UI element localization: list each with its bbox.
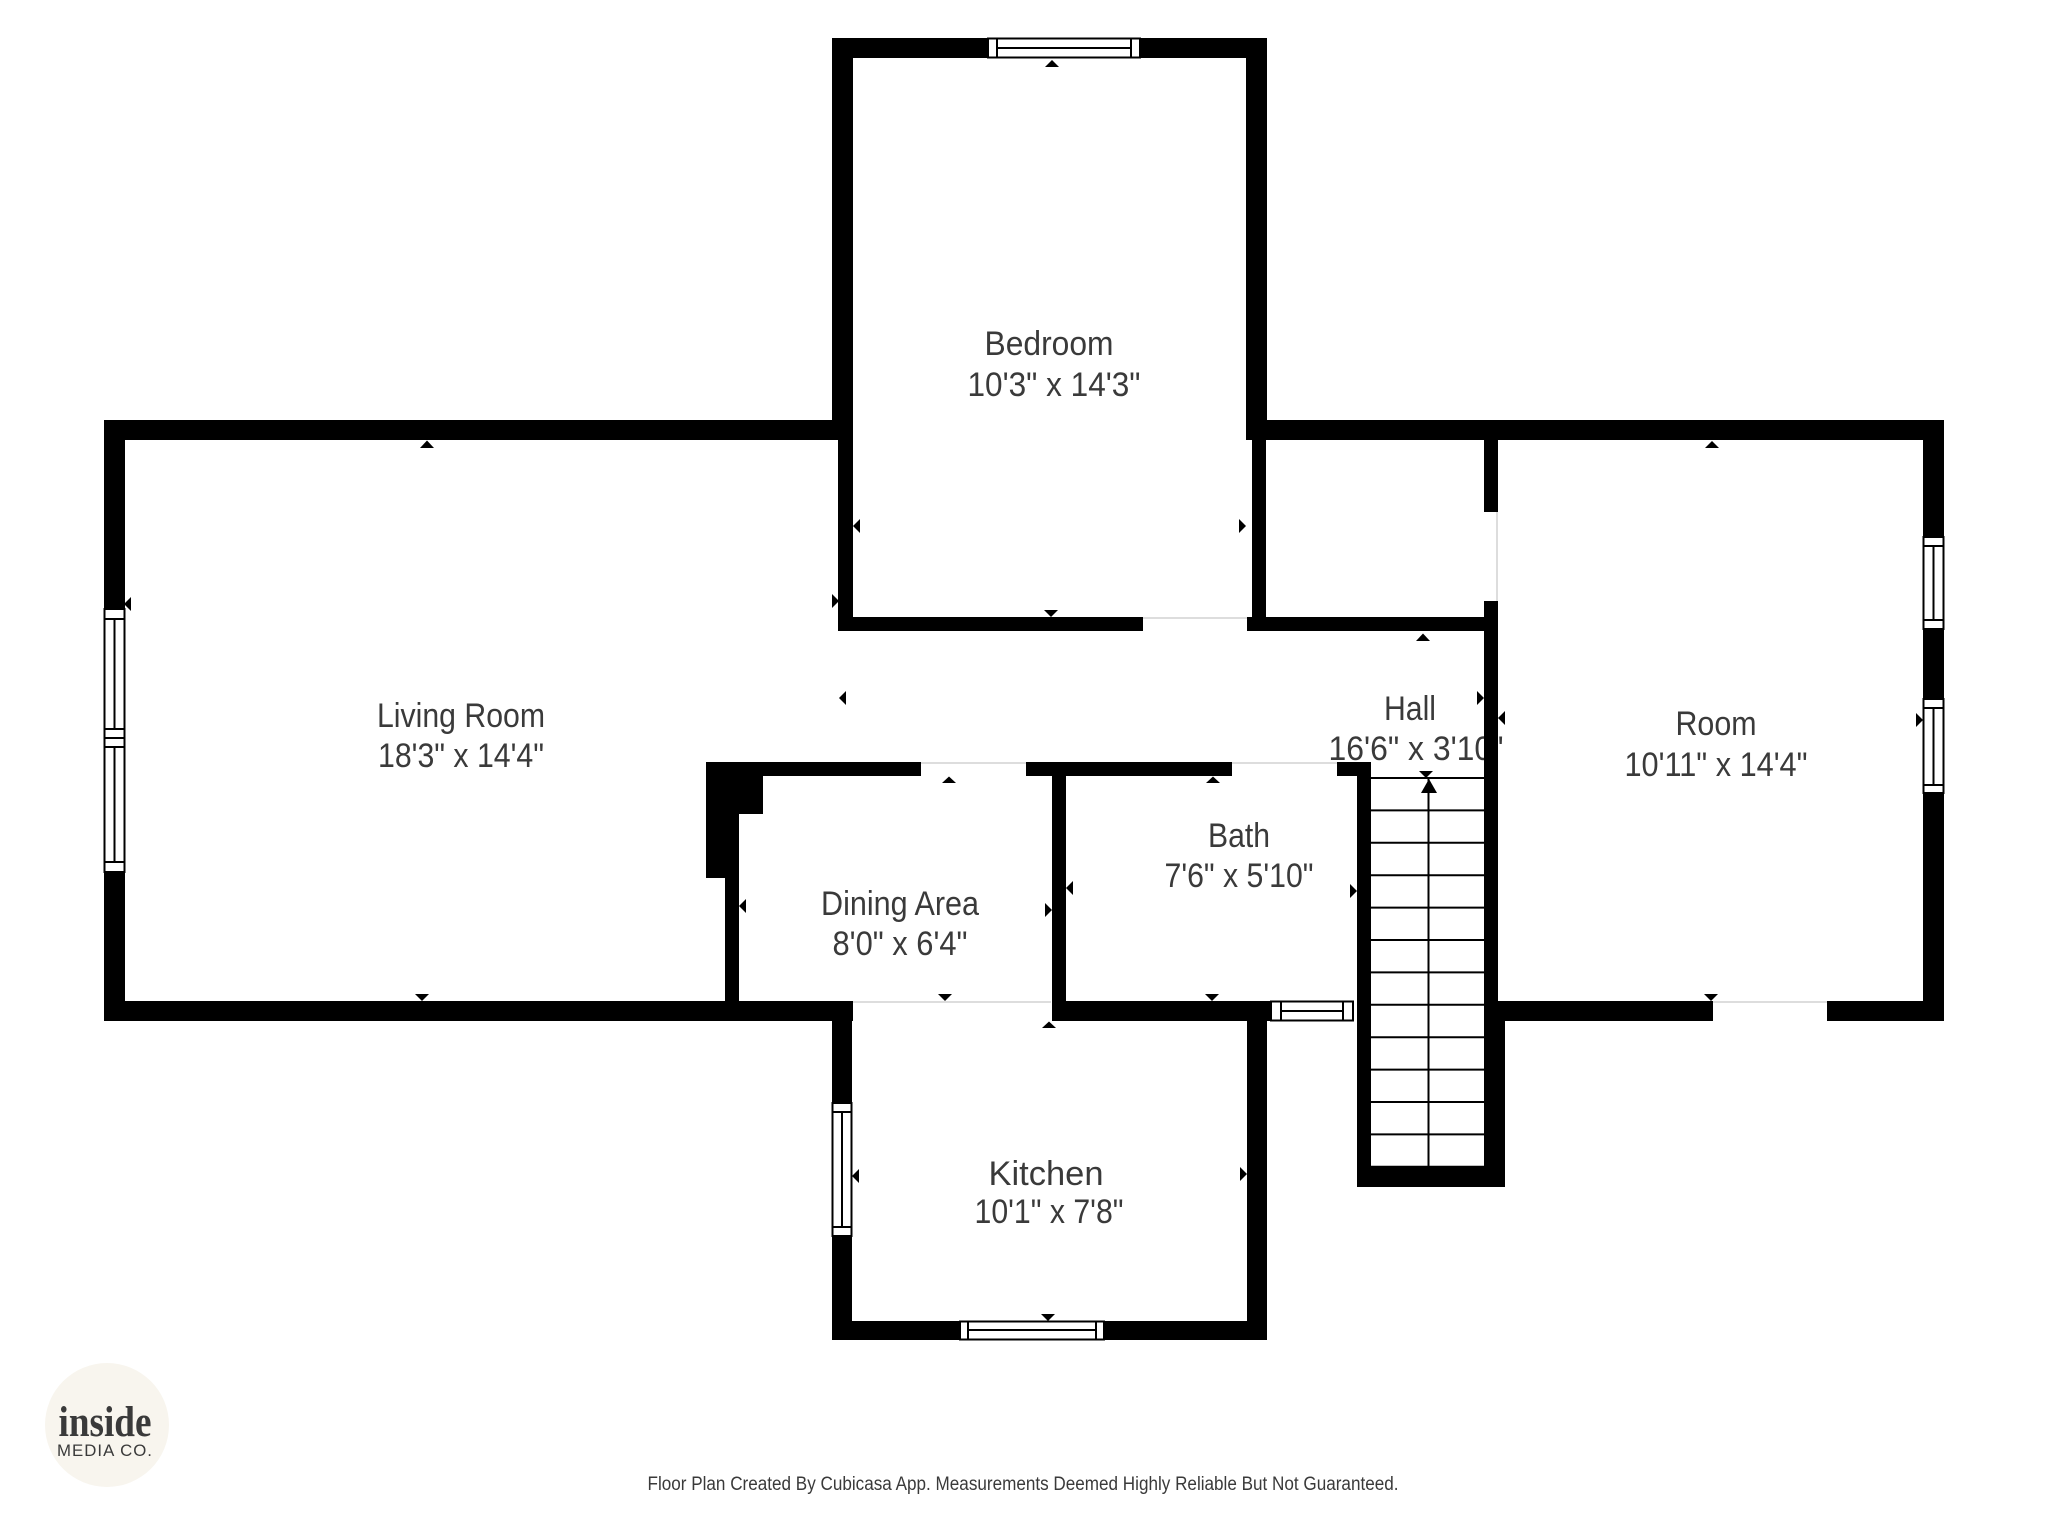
svg-text:Kitchen: Kitchen [989,1155,1104,1193]
svg-text:7'6" x 5'10": 7'6" x 5'10" [1165,857,1314,895]
svg-text:Dining Area: Dining Area [821,885,980,923]
svg-text:Bath: Bath [1208,817,1270,855]
svg-text:inside: inside [59,1399,152,1446]
svg-text:Living Room: Living Room [377,697,545,735]
svg-text:Room: Room [1676,705,1757,743]
svg-text:8'0" x 6'4": 8'0" x 6'4" [833,925,968,963]
svg-text:Floor Plan Created By Cubicasa: Floor Plan Created By Cubicasa App. Meas… [648,1474,1399,1495]
svg-text:10'11" x 14'4": 10'11" x 14'4" [1625,746,1808,784]
svg-text:18'3" x 14'4": 18'3" x 14'4" [378,737,544,775]
svg-text:Bedroom: Bedroom [985,325,1114,363]
svg-text:10'1" x 7'8": 10'1" x 7'8" [975,1193,1124,1231]
svg-text:MEDIA CO.: MEDIA CO. [57,1442,153,1460]
svg-text:Hall: Hall [1384,690,1436,728]
svg-text:10'3" x 14'3": 10'3" x 14'3" [968,366,1141,404]
